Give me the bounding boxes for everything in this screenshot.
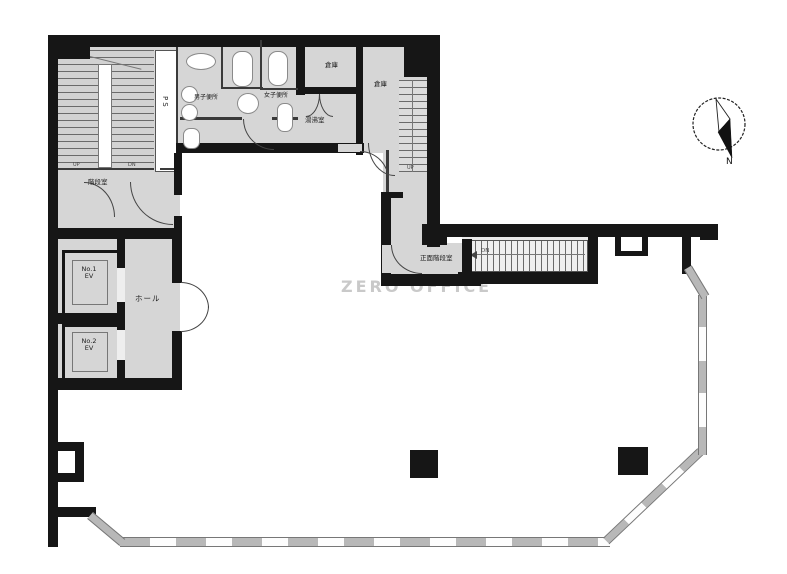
main-stair-handrail bbox=[98, 64, 112, 168]
label-elevator-1-line2: EV bbox=[85, 272, 94, 280]
wall-mens-stall-h bbox=[221, 87, 263, 89]
inner-staircase bbox=[399, 80, 427, 172]
wall-womens-stall-h bbox=[260, 88, 298, 90]
womens-stall-toilet bbox=[268, 51, 288, 86]
label-front-stairwell: 正面階段室 bbox=[420, 255, 453, 262]
wall-ev-right-a bbox=[117, 239, 125, 268]
wall-right-wing-end-block bbox=[700, 224, 718, 240]
wall-womens-storage bbox=[296, 35, 305, 95]
wall-kitchenette-top bbox=[300, 87, 358, 94]
ev1-door-gap bbox=[117, 268, 125, 302]
wall-hall-right-a bbox=[172, 239, 182, 283]
label-storage-1: 倉庫 bbox=[325, 62, 338, 69]
wall-shaft-right bbox=[427, 35, 440, 247]
label-exterior-stair-dn: DN bbox=[481, 248, 489, 254]
wall-right-wing-top bbox=[445, 224, 718, 237]
label-elevator-1: No.1 EV bbox=[72, 266, 106, 281]
inner-stair-center-line bbox=[412, 80, 413, 172]
label-elevator-2-line2: EV bbox=[85, 344, 94, 352]
wall-left-pilaster-bottom bbox=[58, 473, 84, 482]
front-stairwell-door-gap bbox=[382, 245, 391, 273]
label-hall: ホール bbox=[135, 295, 161, 304]
ev2-door-gap bbox=[117, 330, 125, 360]
compass-north-label: N bbox=[726, 157, 733, 167]
wall-shaft-top-block bbox=[404, 47, 428, 77]
label-main-stair-up: UP bbox=[73, 163, 80, 169]
wall-exterior-stair-bottom bbox=[458, 272, 598, 284]
label-womens-toilet: 女子便所 bbox=[264, 93, 288, 100]
exterior-staircase bbox=[468, 240, 588, 272]
floor-plan: ZERO OFFICE bbox=[0, 0, 787, 574]
wall-top bbox=[48, 35, 440, 47]
womens-toilet-low bbox=[277, 103, 293, 132]
wall-storage-divider bbox=[356, 47, 363, 155]
wall-ev-divider bbox=[58, 313, 125, 324]
column-corridor bbox=[422, 224, 447, 245]
mens-toilet-low bbox=[183, 128, 200, 149]
label-elevator-2: No.2 EV bbox=[72, 338, 106, 353]
mens-urinal-2 bbox=[181, 104, 198, 121]
wall-mens-stall-v bbox=[221, 47, 223, 89]
north-compass: N bbox=[690, 92, 754, 172]
wall-top-notch-inner bbox=[621, 237, 642, 251]
label-main-stair-dn: DN bbox=[128, 163, 136, 169]
mens-stall-toilet bbox=[232, 51, 253, 87]
label-storage-2: 倉庫 bbox=[374, 81, 387, 88]
door-arc-hall-upper bbox=[181, 282, 209, 308]
mens-sink bbox=[186, 53, 216, 70]
label-stairwell: 階段室 bbox=[88, 179, 108, 186]
column-1 bbox=[410, 450, 438, 478]
door-arc-hall-lower bbox=[181, 306, 209, 332]
column-2 bbox=[618, 447, 648, 475]
wall-toilet-band-left bbox=[176, 47, 178, 143]
window-wall-right bbox=[698, 295, 707, 455]
label-pipe-shaft: PS bbox=[161, 96, 169, 109]
window-wall-top-right-diagonal bbox=[684, 265, 709, 299]
label-kitchenette: 湯沸室 bbox=[305, 117, 325, 124]
window-wall-bottom-left-diagonal bbox=[87, 512, 125, 546]
wall-left bbox=[48, 35, 58, 547]
mens-basin bbox=[237, 93, 259, 114]
wall-womens-stall-v bbox=[260, 40, 262, 90]
label-mens-toilet: 男子便所 bbox=[194, 95, 218, 102]
band-door-gap bbox=[338, 144, 362, 152]
window-wall-bottom bbox=[120, 537, 610, 547]
wall-ev-hall-bottom bbox=[48, 378, 182, 390]
wall-vestibule-right-a bbox=[174, 153, 182, 195]
wall-vestibule-bottom bbox=[48, 228, 182, 239]
wall-exterior-stair-right bbox=[588, 237, 598, 284]
label-inner-stair-up: UP bbox=[407, 166, 414, 172]
